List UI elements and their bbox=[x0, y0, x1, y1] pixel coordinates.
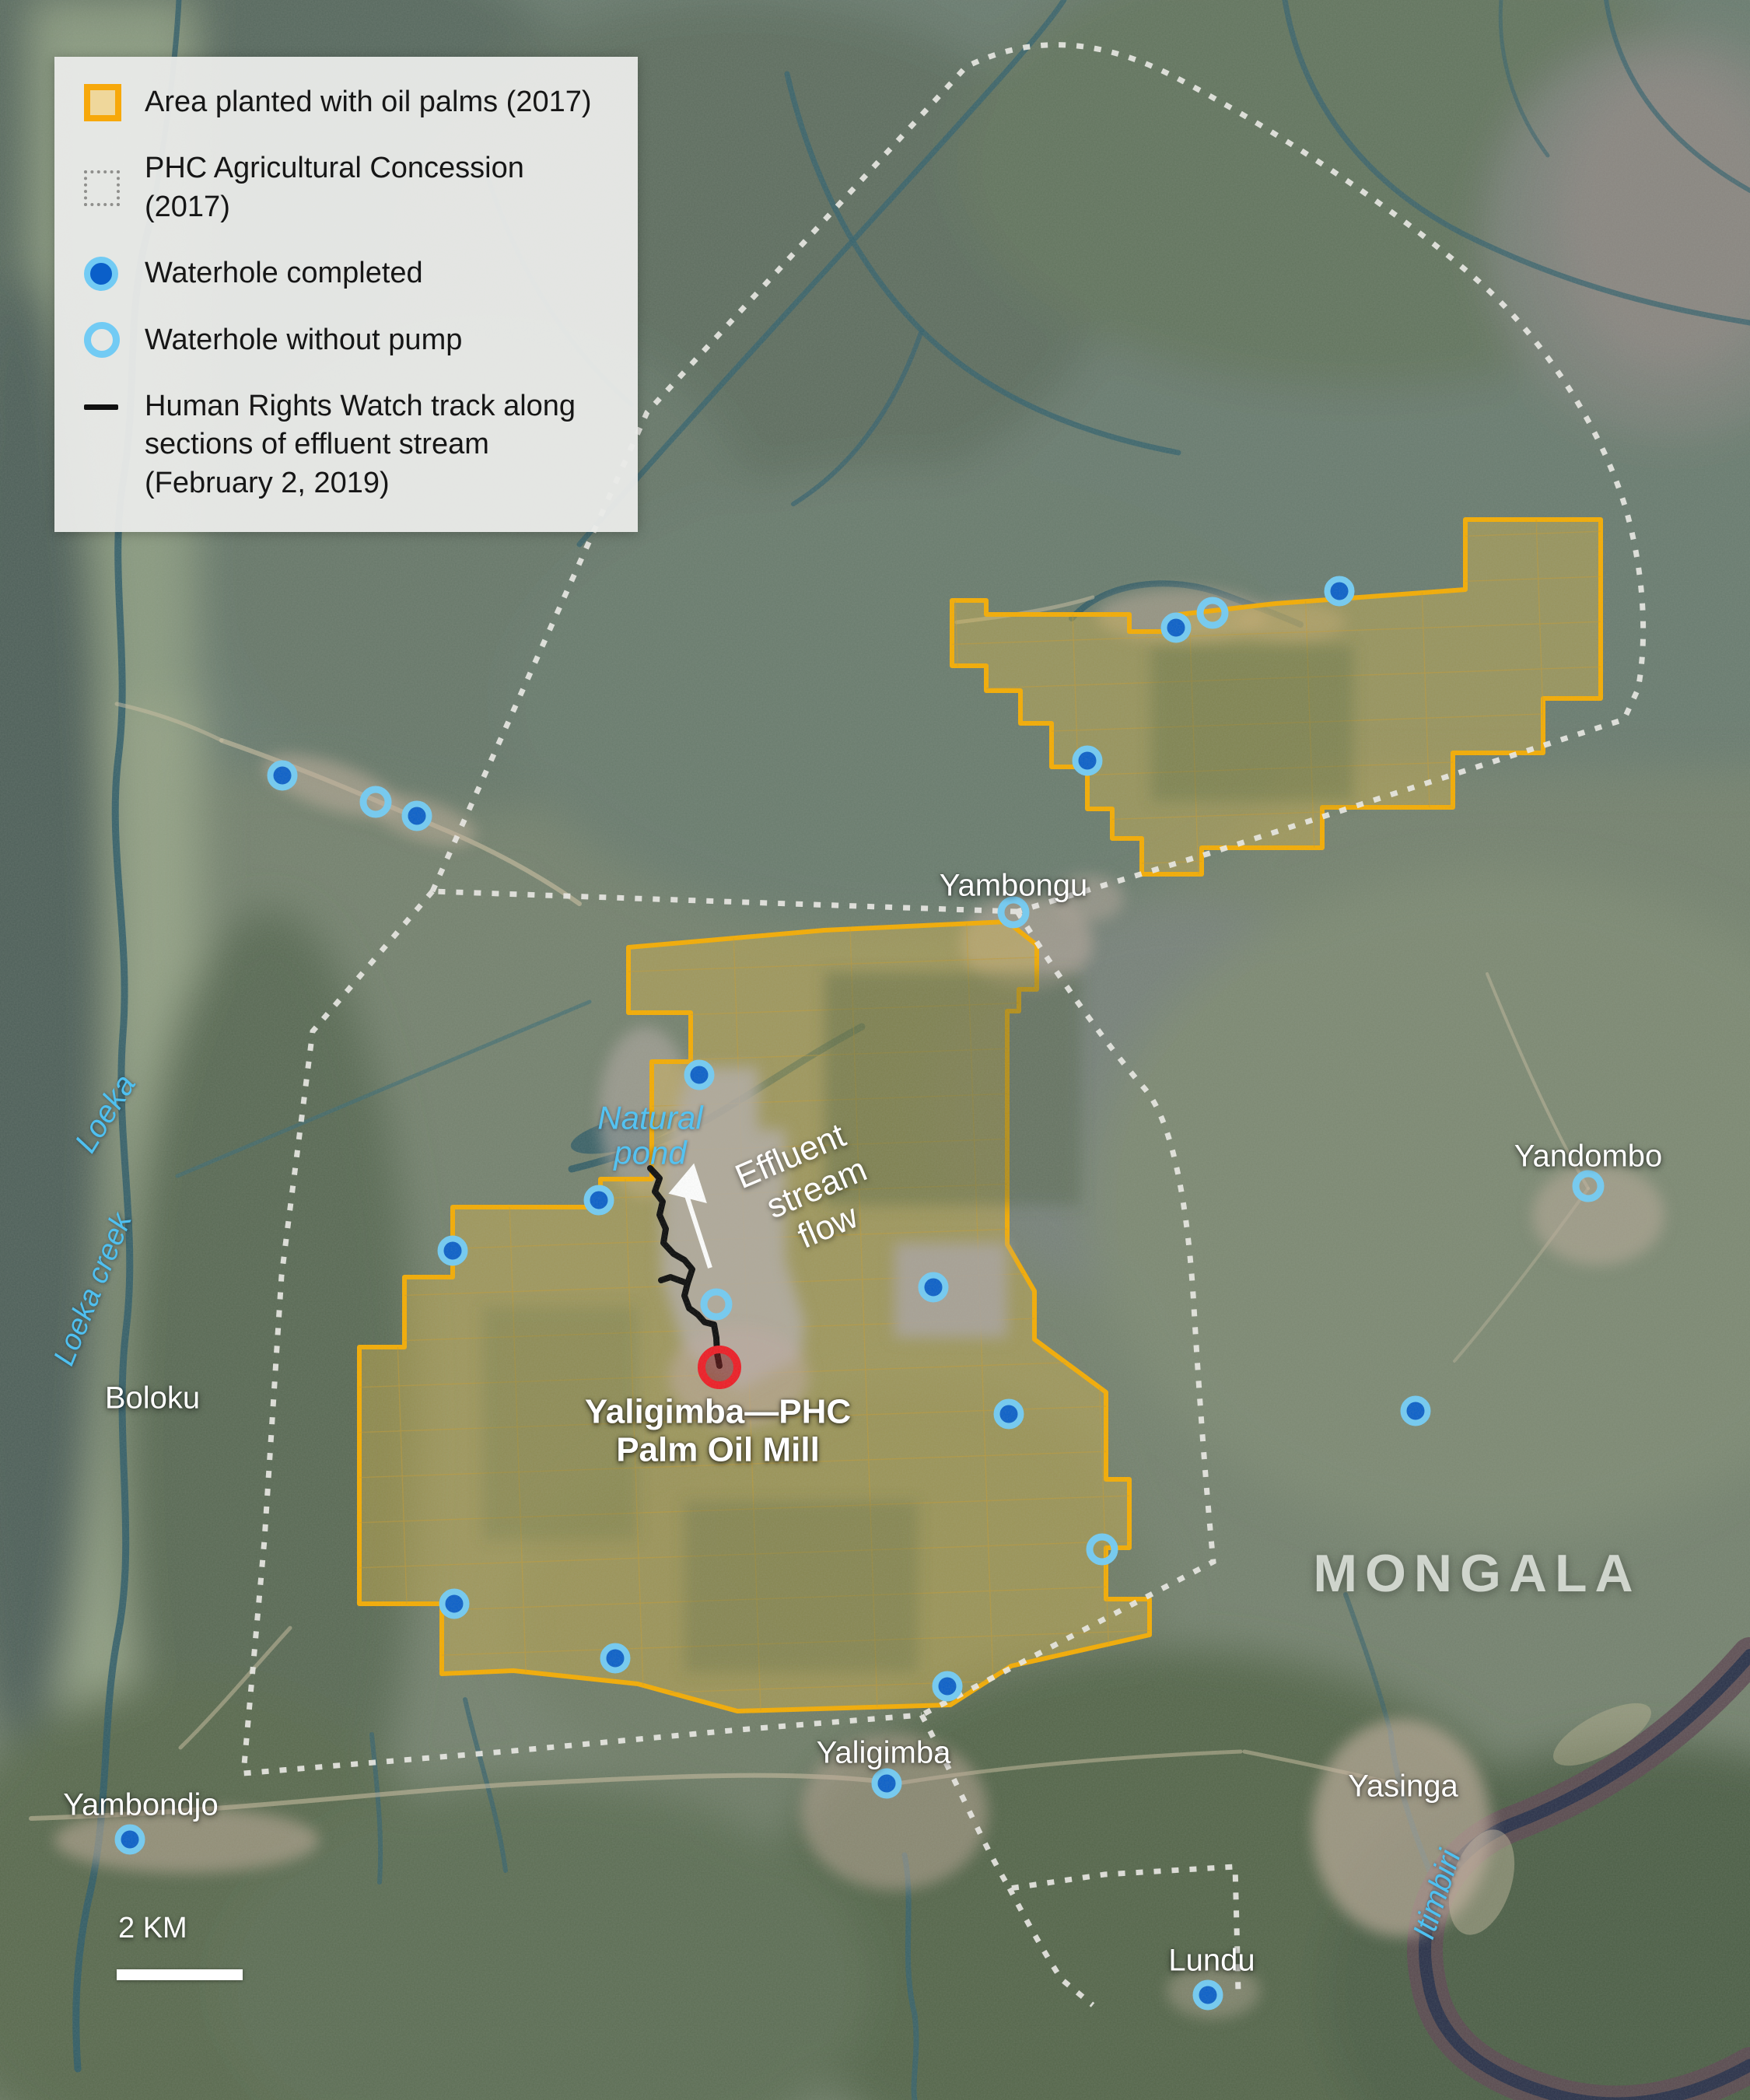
place-label-boloku: Boloku bbox=[105, 1381, 200, 1416]
palm-oil-mill-label: Yaligimba—PHC Palm Oil Mill bbox=[585, 1393, 851, 1470]
scale-label: 2 KM bbox=[118, 1912, 187, 1945]
legend-item-label: Area planted with oil palms (2017) bbox=[128, 83, 592, 121]
place-label-yasinga: Yasinga bbox=[1348, 1769, 1458, 1804]
legend-item-label: Human Rights Watch track along sections … bbox=[128, 387, 596, 502]
legend-item-label: Waterhole without pump bbox=[128, 321, 462, 359]
legend-item-hrw-track: Human Rights Watch track along sections … bbox=[84, 387, 611, 502]
natural-pond-label: Natural pond bbox=[597, 1101, 702, 1171]
place-label-yambongu: Yambongu bbox=[940, 869, 1088, 904]
legend-item-waterhole-no-pump: Waterhole without pump bbox=[84, 321, 611, 359]
legend-item-concession: PHC Agricultural Concession (2017) bbox=[84, 149, 611, 226]
legend-item-planted: Area planted with oil palms (2017) bbox=[84, 83, 611, 121]
legend-panel: Area planted with oil palms (2017) PHC A… bbox=[54, 57, 638, 532]
place-label-yambondjo: Yambondjo bbox=[63, 1788, 218, 1823]
waterhole-completed-icon bbox=[84, 257, 118, 291]
satellite-map: Yambongu Yandombo Boloku Yaligimba Yasin… bbox=[0, 0, 1750, 2100]
waterhole-no-pump-icon bbox=[84, 322, 120, 358]
scale-bar bbox=[117, 1969, 243, 1980]
concession-boundary-swatch bbox=[84, 170, 120, 206]
natural-pond-line1: Natural bbox=[597, 1100, 702, 1136]
place-label-lundu: Lundu bbox=[1168, 1944, 1255, 1979]
legend-item-label: PHC Agricultural Concession (2017) bbox=[128, 149, 596, 226]
region-label-mongala: MONGALA bbox=[1313, 1543, 1640, 1604]
track-line-icon bbox=[84, 404, 118, 410]
mill-label-line1: Yaligimba—PHC bbox=[585, 1393, 851, 1431]
planted-area-swatch bbox=[84, 84, 121, 121]
legend-item-label: Waterhole completed bbox=[128, 254, 423, 292]
place-label-yandombo: Yandombo bbox=[1514, 1139, 1663, 1174]
natural-pond-line2: pond bbox=[614, 1135, 686, 1171]
legend-item-waterhole-completed: Waterhole completed bbox=[84, 254, 611, 292]
mill-label-line2: Palm Oil Mill bbox=[616, 1431, 820, 1469]
place-label-yaligimba: Yaligimba bbox=[817, 1736, 951, 1771]
